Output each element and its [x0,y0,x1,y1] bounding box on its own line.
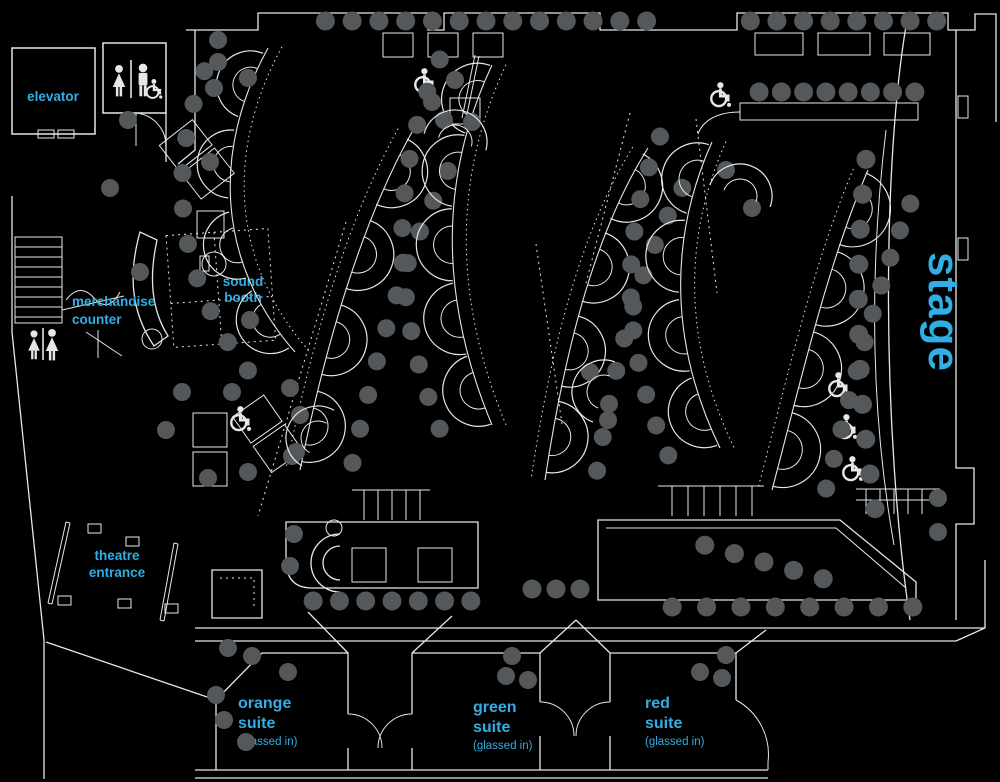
stairs [15,237,124,323]
wheelchair-icon [843,456,863,481]
orange-suite: orange suite (glassed in) [46,642,348,770]
orange-suite-label-2: suite [238,715,275,732]
suite-vestibule-1 [308,612,452,770]
red-suite-label-1: red [645,695,670,712]
merchandise-counter: merchandise counter [72,232,168,349]
green-suite-note: (glassed in) [473,740,533,752]
green-suite: green suite (glassed in) [412,653,540,770]
sound-booth-label-2: booth [224,290,261,305]
floor-plan-drawing: elevator merchandise counter [0,0,1000,782]
railings [352,486,940,520]
womens-restroom-icon [28,328,58,360]
red-suite-note: (glassed in) [645,736,705,748]
theatre-entrance-label-2: entrance [89,565,146,580]
green-suite-label-2: suite [473,719,510,736]
stage-label: stage [919,252,968,372]
sound-booth: sound booth [86,211,276,358]
red-suite-label-2: suite [645,715,682,732]
elevator-label: elevator [27,89,80,104]
theatre-entrance: theatre entrance [48,522,178,621]
elevator-room: elevator [12,48,95,138]
red-suite: red suite (glassed in) [610,630,768,770]
restroom-icon [113,60,163,99]
wheelchair-icon [711,82,731,107]
restroom [103,43,166,162]
green-suite-label-1: green [473,699,517,716]
merchandise-counter-label-1: merchandise [72,294,156,309]
sound-booth-label-1: sound [223,274,264,289]
tables [159,33,930,582]
suites: orange suite (glassed in) green suite (g… [46,612,768,778]
wheelchair-icon [147,79,163,99]
suite-vestibule-2 [540,620,610,770]
orange-suite-label-1: orange [238,695,291,712]
seating-booths-and-seats [101,12,950,752]
theatre-floor-plan: elevator merchandise counter [0,0,1000,782]
merchandise-counter-label-2: counter [72,312,122,327]
stage-area: stage [875,26,968,620]
theatre-entrance-label-1: theatre [94,548,140,563]
